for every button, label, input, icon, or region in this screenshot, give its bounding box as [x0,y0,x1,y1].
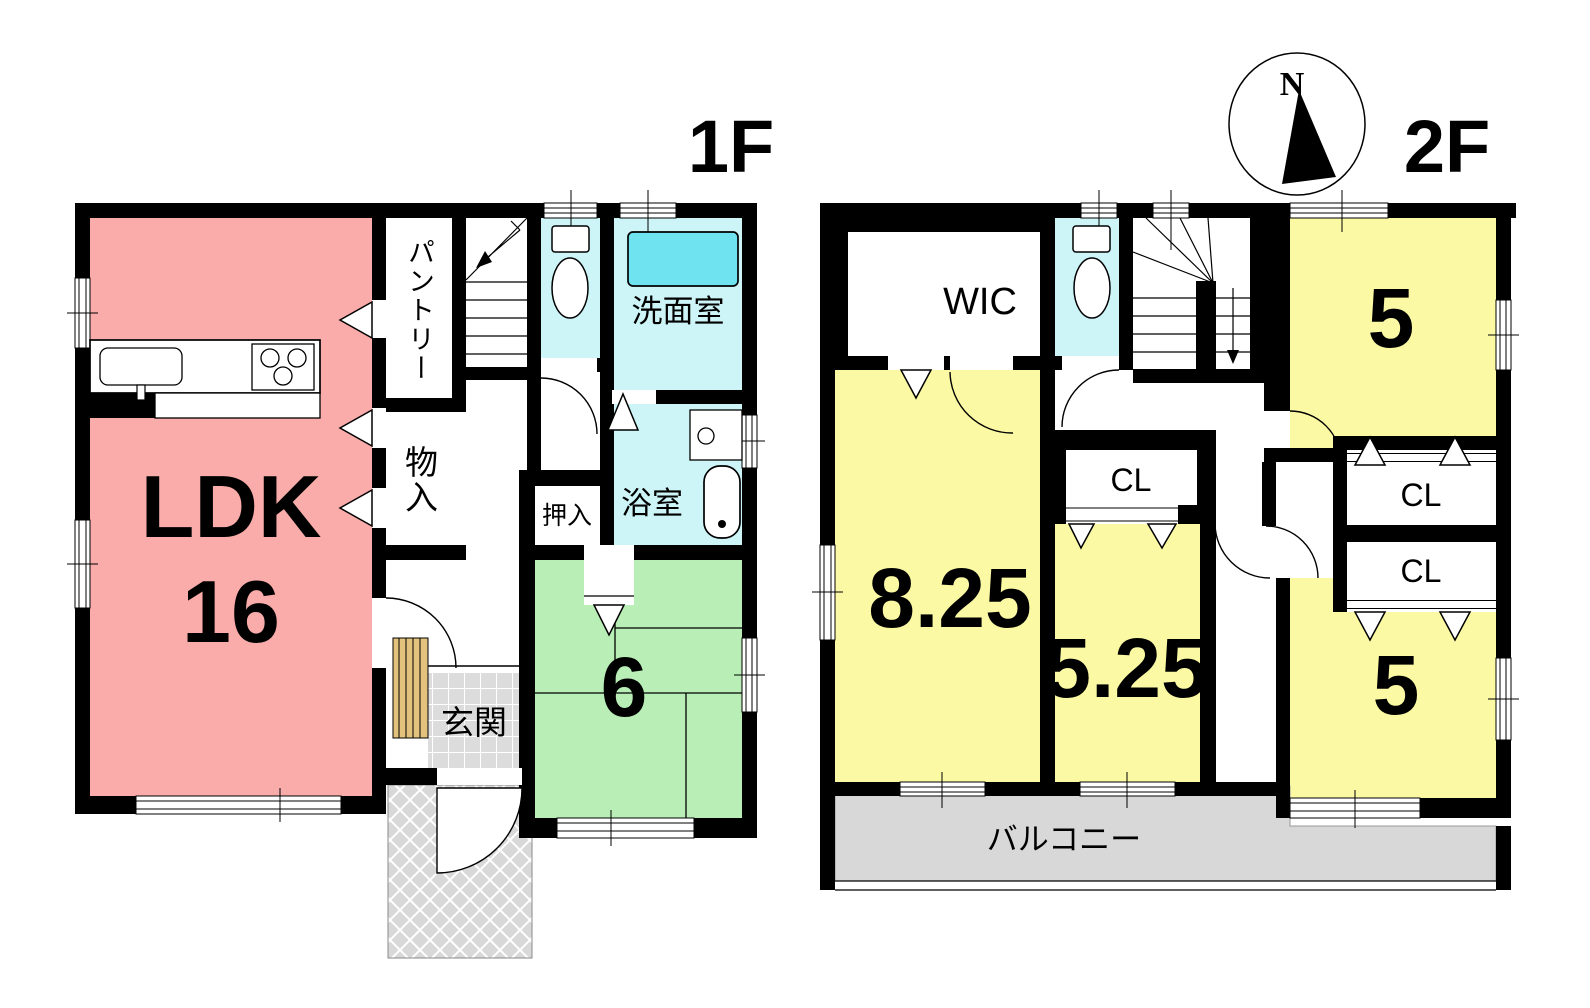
toilet-fixture-2f [1073,226,1110,318]
label-room-5-top: 5 [1368,271,1415,365]
window [136,796,341,814]
compass: N [1229,53,1365,195]
label-room-525: 5.25 [1044,621,1208,715]
kitchen-sink [100,348,182,385]
label-bathroom: 浴室 [621,486,683,521]
label-tatami-size: 6 [601,640,648,734]
opening-storage-lower [372,488,386,528]
label-cl-upper: CL [1401,477,1442,513]
opening-front-door [437,768,522,785]
kitchen-counter-return [155,393,320,418]
opening-washroom-door [612,390,656,404]
label-ldk-size: 16 [182,562,280,661]
opening-5top-door [1264,411,1290,448]
opening-ldk-door [372,598,386,668]
label-oshiire: 押入 [542,502,592,530]
label-room-5-bottom: 5 [1373,638,1420,732]
label-genkan: 玄関 [441,704,507,741]
opening-toilet-2f [1062,356,1119,370]
vanity-counter [628,232,738,286]
opening-pantry [372,300,386,338]
toilet-tank [1073,226,1110,252]
toilet-bowl [1074,258,1110,318]
label-balcony: バルコニー [987,822,1141,857]
floorplan-page: 1F LDK 16 パントリー 物入 押入 洗面室 浴室 玄関 6 [0,0,1590,1008]
opening-wic [888,356,944,370]
kitchen-faucet [137,385,145,400]
label-ldk: LDK [141,457,322,556]
label-2f: 2F [1404,105,1490,188]
toilet-bowl [552,258,588,318]
label-cl-middle: CL [1111,462,1152,498]
window [1290,203,1388,218]
label-room-825: 8.25 [868,551,1032,645]
toilet-tank [552,226,589,252]
opening-825-door [950,356,1013,370]
label-cl-lower: CL [1401,553,1442,589]
entrance-wood-step [393,638,428,738]
washer-drain [698,428,714,444]
label-washroom: 洗面室 [632,294,725,329]
label-north: N [1280,66,1305,103]
label-1f: 1F [688,105,774,188]
label-pantry: パントリー [404,238,434,383]
opening-5bottom-door [1262,526,1276,578]
floorplan-canvas: 1F LDK 16 パントリー 物入 押入 洗面室 浴室 玄関 6 [0,0,1590,1008]
label-storage: 物入 [401,445,439,515]
toilet-fixture-1f [552,226,589,318]
label-wic: WIC [943,281,1017,323]
bathtub-drain [718,520,726,528]
closet-lower-track [1347,597,1496,612]
opening-storage-upper [372,408,386,448]
opening-toilet-door [541,358,597,372]
window [557,818,694,838]
